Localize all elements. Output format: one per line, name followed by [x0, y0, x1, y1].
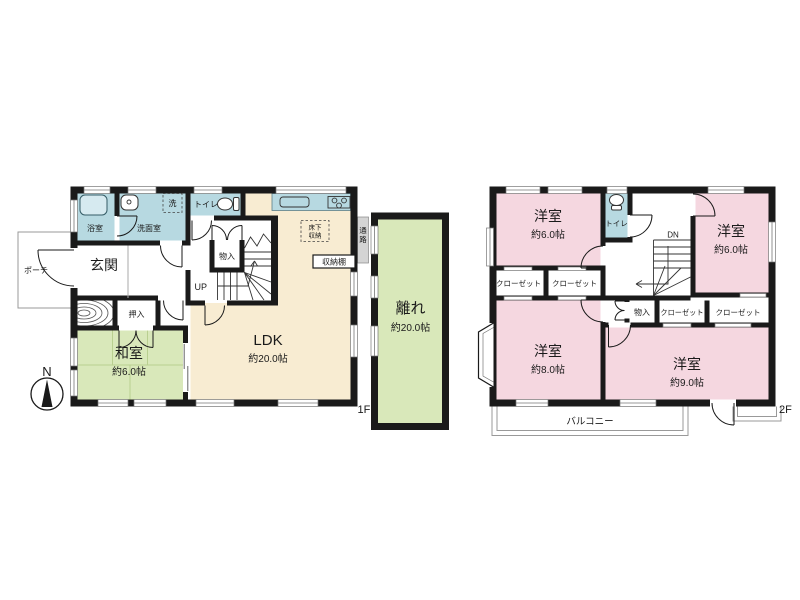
washitsu-sliding-door — [184, 344, 188, 391]
bedroom2-size-label: 約6.0帖 — [714, 243, 748, 256]
closet-label-2: クローゼット — [552, 278, 597, 288]
bedroom4-name-label: 洋室 — [673, 356, 701, 372]
washbasin-icon — [121, 195, 138, 210]
bedroom-2 — [696, 194, 769, 293]
hanare-name-label: 離れ — [395, 299, 425, 317]
toilet-icon-1f — [218, 198, 233, 210]
compass: N — [31, 364, 63, 410]
underfloor-storage-label-2: 収納 — [309, 231, 322, 240]
bedroom1-size-label: 約6.0帖 — [531, 228, 565, 241]
closet-label-3: クローゼット — [660, 308, 703, 317]
bedroom3-name-label: 洋室 — [534, 343, 562, 359]
tokonoma-spiral-decoration — [54, 296, 114, 330]
closet-label-1: クローゼット — [496, 278, 541, 288]
bathtub-icon — [80, 195, 107, 215]
oshiire-label: 押入 — [129, 309, 145, 319]
hanare-size-label: 約20.0帖 — [391, 321, 430, 334]
floor-label-2f: 2F — [779, 404, 792, 416]
floor-label-1f: 1F — [358, 404, 371, 416]
underfloor-storage-label-1: 床下 — [309, 223, 323, 232]
floor-plan-drawing: 浴室 洗面室 洗 トイレ 玄関 ポーチ 物入 UP 押入 和室 約6.0帖 LD… — [0, 0, 800, 600]
floor-1f: 浴室 洗面室 洗 トイレ 玄関 ポーチ 物入 UP 押入 和室 約6.0帖 LD… — [18, 187, 449, 431]
ldk-size-label: 約20.0帖 — [248, 352, 287, 365]
balcony-outline — [492, 407, 781, 436]
toilet-icon-2f — [610, 195, 624, 206]
washroom-label: 洗面室 — [137, 223, 161, 233]
toilet-label-2f: トイレ — [605, 219, 628, 228]
bedroom1-name-label: 洋室 — [534, 208, 562, 224]
bay-window — [479, 323, 494, 387]
porch-label: ポーチ — [24, 266, 48, 275]
stairs-down-label: DN — [667, 231, 679, 240]
ldk-name-label: LDK — [253, 332, 282, 349]
monoire-label-1f: 物入 — [219, 251, 235, 261]
floor-2f: 洋室 約6.0帖 洋室 約6.0帖 洋室 約8.0帖 洋室 約9.0帖 トイレ … — [479, 187, 793, 436]
washitsu-size-label: 約6.0帖 — [112, 365, 146, 378]
stairs-up-label: UP — [194, 282, 207, 292]
toilet-label-1f: トイレ — [194, 200, 218, 209]
passage-label-2: 路 — [359, 234, 367, 244]
monoire-label-2f: 物入 — [634, 307, 650, 317]
storage-shelf-label: 収納棚 — [322, 257, 346, 267]
ldk-room — [191, 194, 351, 400]
closet-label-4: クローゼット — [716, 307, 761, 317]
bedroom2-name-label: 洋室 — [717, 223, 745, 239]
f2-fixtures — [610, 195, 624, 211]
bedroom3-size-label: 約8.0帖 — [531, 363, 565, 376]
bath-label: 浴室 — [87, 223, 103, 233]
north-needle-icon — [42, 380, 53, 408]
bedroom4-size-label: 約9.0帖 — [670, 376, 704, 389]
floor-plan-page: 浴室 洗面室 洗 トイレ 玄関 ポーチ 物入 UP 押入 和室 約6.0帖 LD… — [0, 0, 800, 600]
entrance-label: 玄関 — [90, 257, 118, 273]
washitsu-name-label: 和室 — [115, 345, 143, 361]
balcony-label: バルコニー — [566, 417, 613, 428]
stairs-down-2f — [636, 240, 691, 296]
passage-label-1: 通 — [359, 225, 367, 235]
compass-north-label: N — [42, 364, 51, 379]
laundry-label: 洗 — [169, 198, 177, 208]
